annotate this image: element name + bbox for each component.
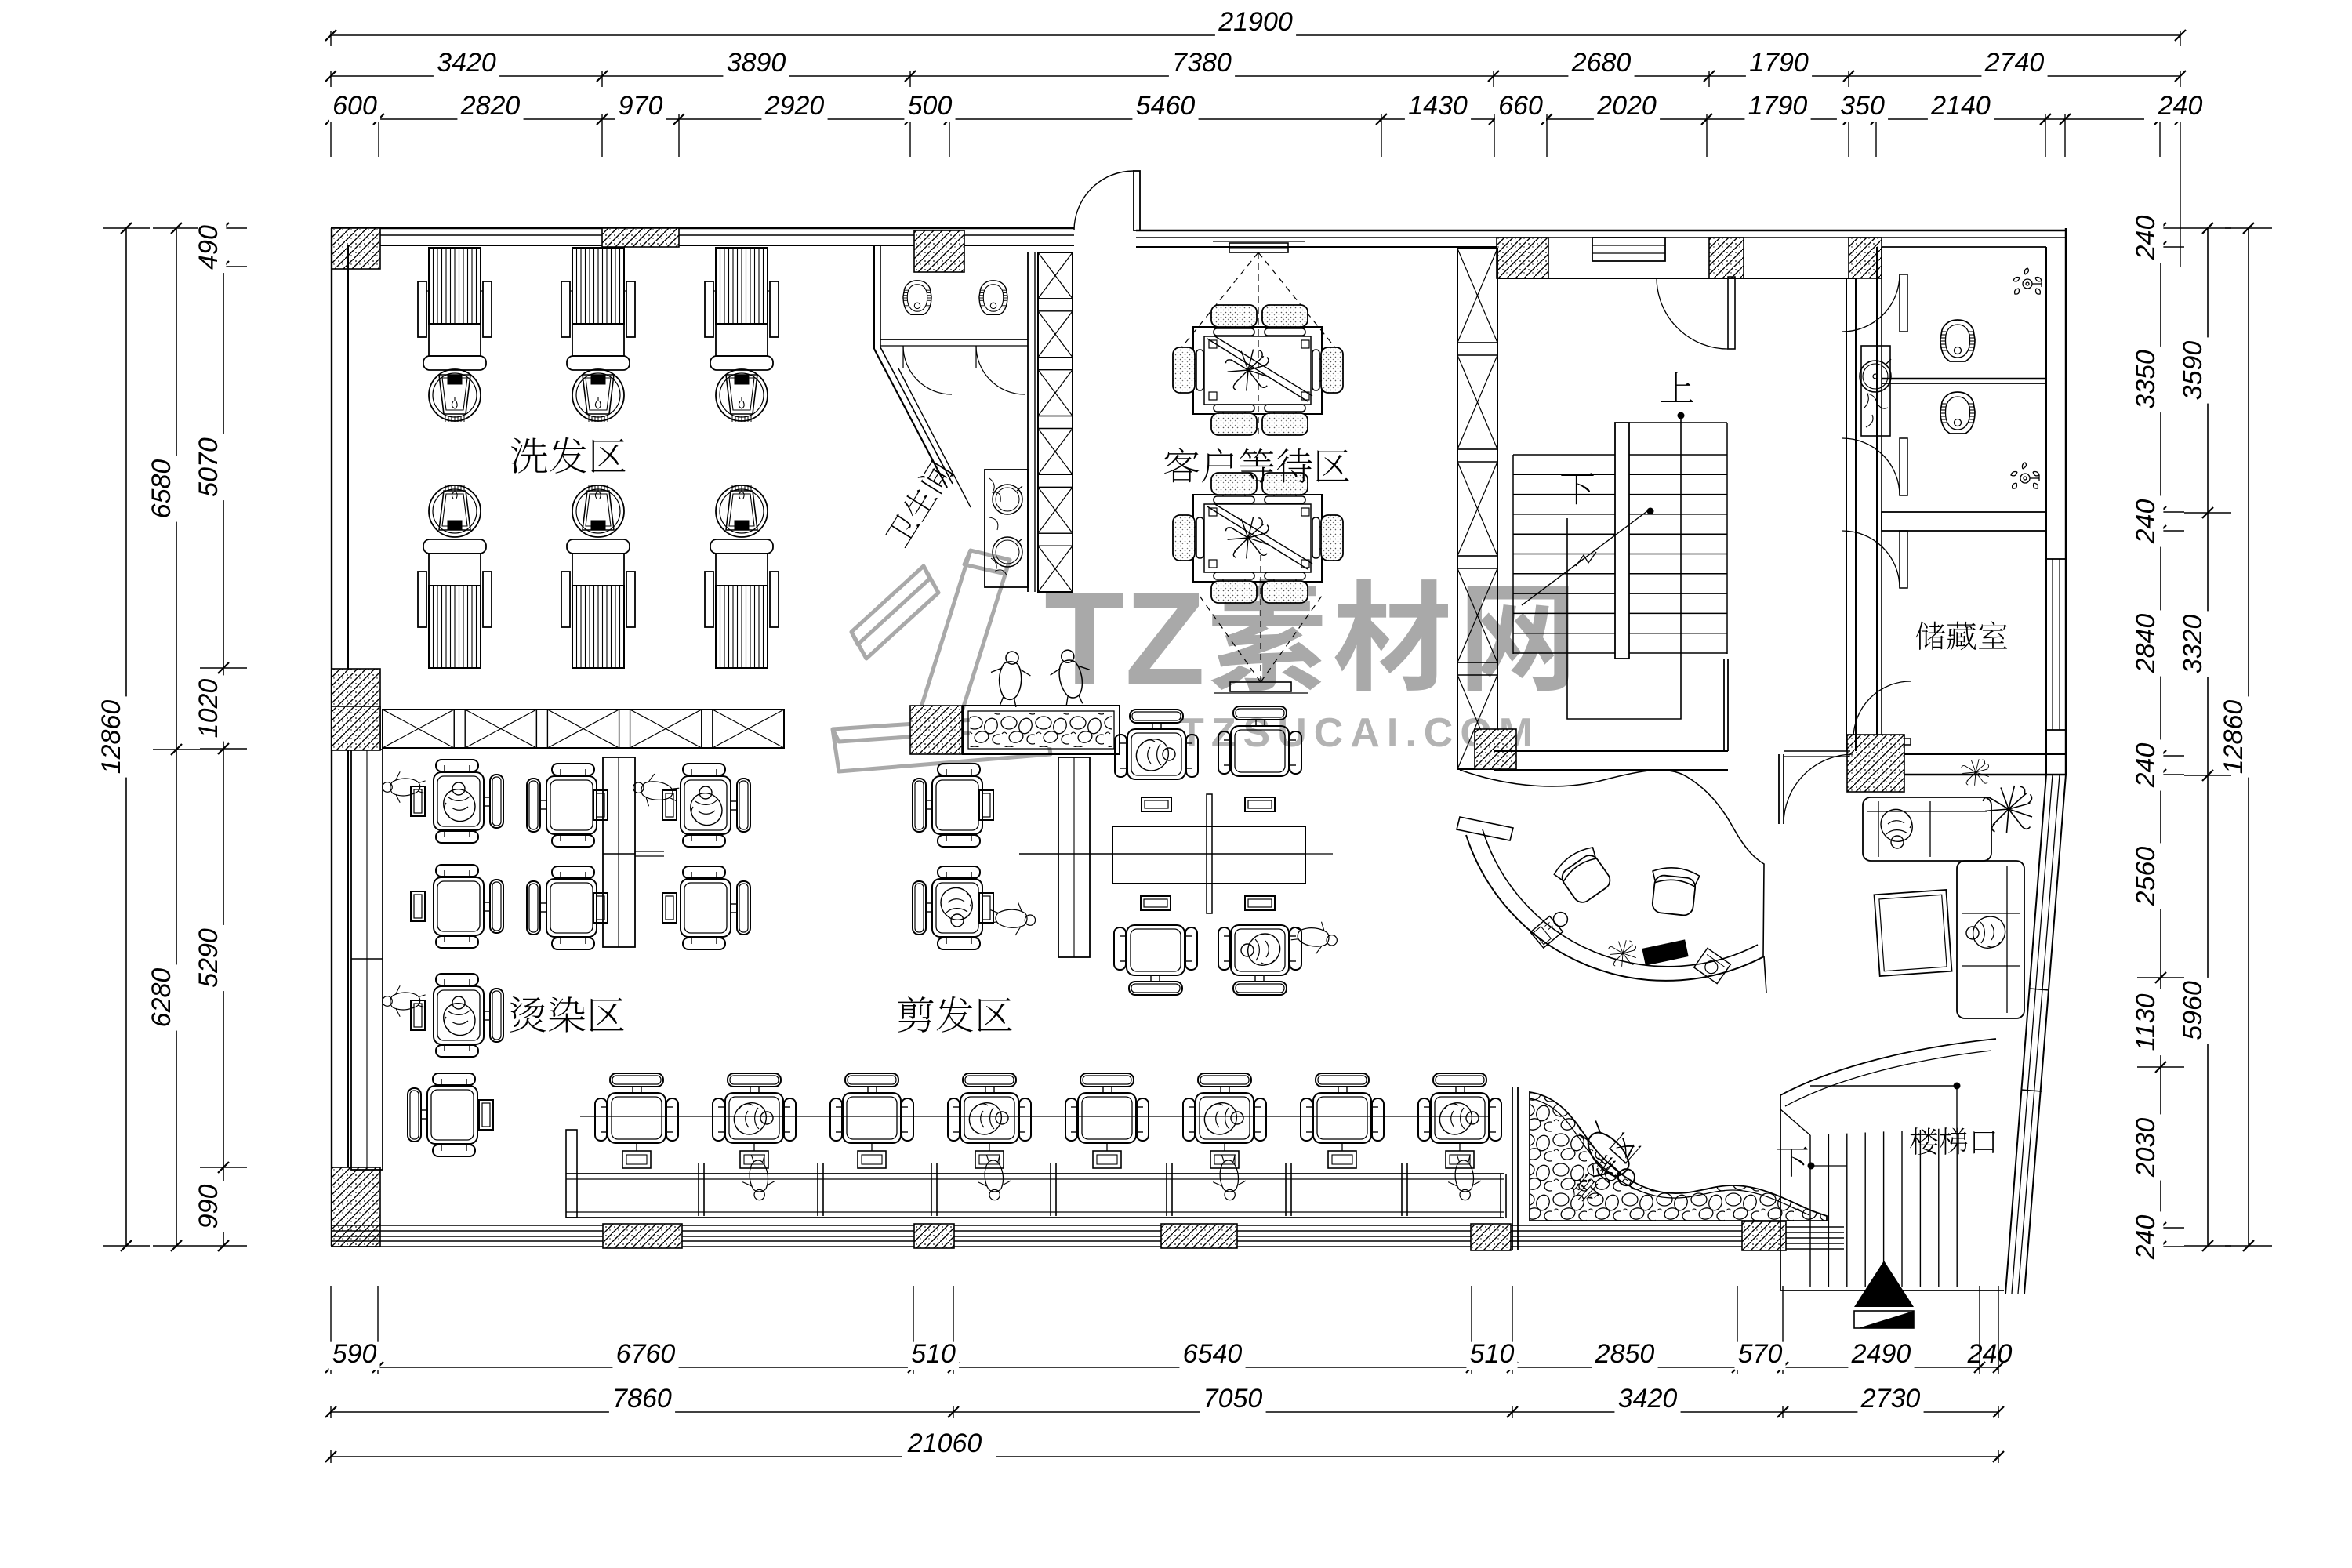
svg-text:240: 240 — [1967, 1339, 2013, 1369]
svg-text:5460: 5460 — [1136, 91, 1196, 121]
svg-text:3420: 3420 — [437, 48, 496, 78]
svg-text:660: 660 — [1498, 91, 1543, 121]
svg-text:12860: 12860 — [96, 700, 126, 775]
svg-text:490: 490 — [194, 225, 223, 270]
svg-text:240: 240 — [2158, 91, 2203, 121]
svg-text:6760: 6760 — [616, 1339, 676, 1369]
svg-text:2730: 2730 — [1860, 1384, 1921, 1414]
svg-text:1020: 1020 — [194, 679, 223, 739]
svg-text:2820: 2820 — [460, 91, 521, 121]
svg-text:2920: 2920 — [764, 91, 825, 121]
svg-text:240: 240 — [2131, 1215, 2161, 1261]
svg-text:3350: 3350 — [2131, 350, 2161, 409]
svg-text:600: 600 — [332, 91, 377, 121]
svg-text:7380: 7380 — [1172, 48, 1232, 78]
svg-text:240: 240 — [2131, 216, 2161, 261]
svg-text:2490: 2490 — [1851, 1339, 1911, 1369]
svg-text:2740: 2740 — [1984, 48, 2045, 78]
svg-text:970: 970 — [619, 91, 663, 121]
svg-text:350: 350 — [1840, 91, 1885, 121]
svg-text:21900: 21900 — [1218, 7, 1293, 37]
svg-text:2680: 2680 — [1571, 48, 1632, 78]
svg-text:7050: 7050 — [1203, 1384, 1263, 1414]
svg-text:2850: 2850 — [1595, 1339, 1655, 1369]
svg-text:3320: 3320 — [2178, 615, 2208, 674]
svg-text:510: 510 — [911, 1339, 956, 1369]
svg-text:1130: 1130 — [2131, 993, 2161, 1051]
svg-text:2840: 2840 — [2131, 614, 2161, 674]
svg-text:1790: 1790 — [1748, 91, 1808, 121]
svg-text:21060: 21060 — [907, 1428, 982, 1458]
svg-text:6580: 6580 — [147, 459, 176, 519]
svg-text:2030: 2030 — [2131, 1118, 2161, 1178]
svg-text:990: 990 — [194, 1185, 223, 1229]
svg-text:7860: 7860 — [612, 1384, 672, 1414]
svg-text:5290: 5290 — [194, 928, 223, 988]
svg-text:6540: 6540 — [1183, 1339, 1243, 1369]
svg-text:5960: 5960 — [2178, 981, 2208, 1040]
svg-text:2020: 2020 — [1596, 91, 1657, 121]
svg-text:5070: 5070 — [194, 437, 223, 497]
svg-text:1790: 1790 — [1749, 48, 1809, 78]
svg-text:570: 570 — [1738, 1339, 1783, 1369]
svg-text:1430: 1430 — [1408, 91, 1468, 121]
svg-text:2560: 2560 — [2131, 847, 2161, 907]
svg-text:510: 510 — [1470, 1339, 1515, 1369]
svg-text:590: 590 — [332, 1339, 377, 1369]
svg-text:3590: 3590 — [2178, 341, 2208, 401]
svg-text:240: 240 — [2131, 743, 2161, 789]
svg-text:3420: 3420 — [1618, 1384, 1678, 1414]
svg-text:12860: 12860 — [2219, 700, 2249, 775]
svg-text:500: 500 — [908, 91, 953, 121]
svg-text:240: 240 — [2131, 499, 2161, 545]
svg-text:6280: 6280 — [147, 968, 176, 1028]
svg-text:2140: 2140 — [1930, 91, 1991, 121]
svg-text:3890: 3890 — [727, 48, 786, 78]
